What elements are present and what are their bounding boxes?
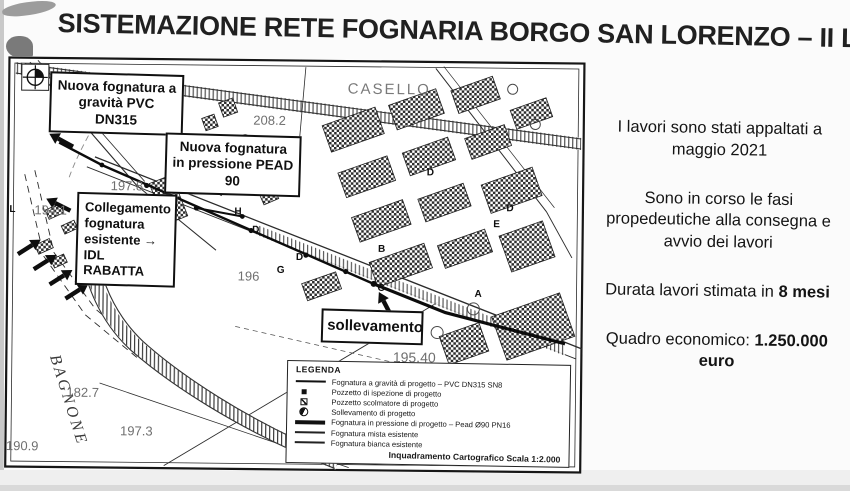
manhole-square-icon — [296, 389, 332, 395]
svg-text:A: A — [474, 289, 481, 300]
north-compass-icon — [22, 64, 49, 90]
mixed-sewer-line-icon — [295, 431, 331, 434]
svg-text:L: L — [9, 204, 15, 215]
label-bagnone: BAGNONE — [46, 353, 91, 449]
svg-text:182.7: 182.7 — [66, 385, 99, 400]
page-curl-artifact — [1, 0, 56, 19]
svg-text:G: G — [277, 265, 285, 276]
svg-text:C: C — [378, 283, 385, 294]
svg-text:194.1: 194.1 — [34, 202, 67, 217]
svg-text:D: D — [252, 225, 259, 236]
scan-blob-artifact — [6, 36, 33, 58]
pressure-line-icon — [295, 420, 331, 424]
durata-value: 8 mesi — [778, 283, 830, 302]
callout-gravita: Nuova fognatura a gravità PVC DN315 — [49, 71, 185, 136]
callout-sollevamento: sollevamento — [321, 308, 424, 345]
lift-station-circle-icon — [295, 407, 331, 417]
svg-text:190.9: 190.9 — [6, 438, 39, 453]
info-appalto: I lavori sono stati appaltati a maggio 2… — [591, 116, 848, 163]
callout-pressione: Nuova fognatura in pressione PEAD 90 — [164, 132, 302, 197]
scale-note: Inquadramento Cartografico Scala 1:2.000 — [388, 450, 560, 465]
map-panel: CASELLO BAGNONE N.551 208.2 197.8 194.1 … — [4, 56, 586, 474]
svg-text:197.8: 197.8 — [111, 178, 144, 193]
svg-text:H: H — [234, 206, 241, 217]
info-panel: I lavori sono stati appaltati a maggio 2… — [588, 116, 848, 402]
page-title: SISTEMAZIONE RETE FOGNARIA BORGO SAN LOR… — [57, 8, 849, 54]
svg-text:B: B — [378, 244, 385, 255]
svg-text:196: 196 — [238, 268, 260, 283]
overflow-square-icon — [295, 398, 331, 406]
svg-text:D: D — [427, 167, 434, 178]
label-casello: CASELLO — [348, 81, 431, 99]
callout-collegamento: Collegamento fognatura esistente → IDL R… — [75, 192, 178, 288]
svg-text:208.2: 208.2 — [253, 113, 286, 128]
storm-sewer-line-icon — [295, 441, 331, 444]
info-quadro: Quadro economico: 1.250.000 euro — [588, 328, 845, 375]
svg-text:E: E — [493, 219, 500, 230]
map-legend: LEGENDA Fognatura a gravità di progetto … — [285, 360, 571, 468]
info-durata: Durata lavori stimata in 8 mesi — [589, 279, 845, 304]
svg-text:D: D — [296, 252, 303, 263]
photo-bottom-strip — [0, 470, 850, 491]
gravity-line-icon — [296, 380, 332, 383]
svg-text:D: D — [506, 203, 513, 214]
svg-text:197.3: 197.3 — [120, 423, 153, 438]
info-fasi: Sono in corso le fasi propedeutiche alla… — [590, 187, 847, 256]
